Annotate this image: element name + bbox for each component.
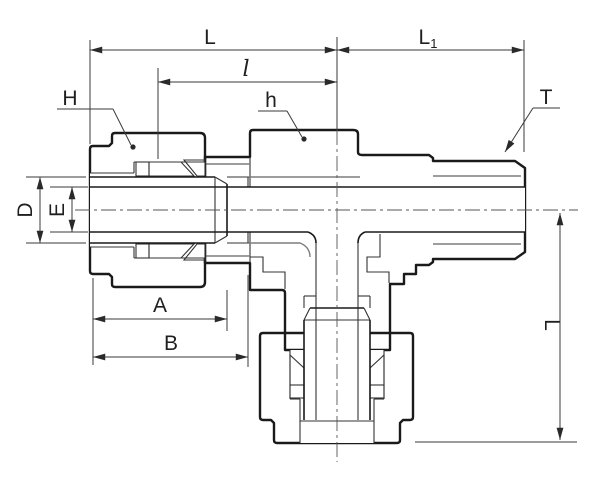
fitting-technical-drawing: L L1 l H h T D E A B L — [0, 0, 603, 485]
label-E: E — [46, 203, 69, 217]
label-L: L — [204, 26, 216, 49]
leader-T — [505, 108, 560, 152]
label-L1: L1 — [419, 26, 438, 51]
drawing-canvas: L L1 l H h T D E A B L — [0, 0, 603, 485]
label-B: B — [164, 332, 178, 355]
label-L-vertical: L — [540, 319, 563, 331]
label-D: D — [14, 202, 37, 217]
label-h: h — [265, 89, 277, 112]
leader-H — [57, 109, 136, 150]
label-T: T — [540, 86, 553, 109]
label-A: A — [153, 294, 167, 317]
leader-h — [258, 111, 307, 142]
label-H: H — [62, 87, 77, 110]
label-l: l — [242, 57, 249, 82]
